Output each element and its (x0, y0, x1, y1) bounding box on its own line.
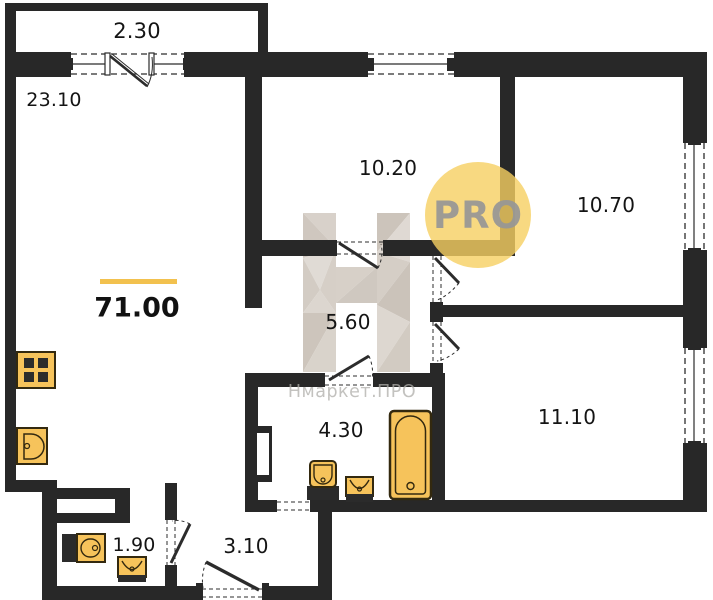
room-label-bedroom3: 11.10 (538, 405, 596, 429)
room-label-bedroom1: 10.20 (359, 156, 417, 180)
room-label-living: 23.10 (26, 89, 81, 111)
wall (683, 250, 707, 348)
wall (5, 480, 52, 492)
sink-icon (346, 477, 373, 502)
kitchen-sink-icon (17, 428, 47, 464)
bathtub-icon (390, 411, 431, 499)
toilet-icon (307, 461, 339, 500)
entrance-door-icon (196, 562, 269, 600)
wall (454, 52, 707, 77)
sink-icon (118, 557, 146, 582)
door-icon (337, 242, 383, 268)
watermark-text: Нмаркет.ПРО (288, 382, 416, 402)
wall (42, 586, 202, 600)
window-icon (366, 54, 455, 74)
balcony-door-icon (65, 53, 191, 87)
room-label-wc: 1.90 (112, 534, 155, 556)
wall (57, 513, 130, 523)
wall (165, 565, 177, 588)
pro-badge-label: PRO (433, 194, 523, 237)
pro-badge: PRO (425, 162, 531, 268)
wall (165, 483, 177, 520)
room-label-balcony: 2.30 (113, 19, 161, 43)
window-icon (685, 137, 704, 256)
room-label-bedroom2: 10.70 (577, 193, 635, 217)
wall (258, 3, 268, 53)
shaft-niche (257, 433, 269, 475)
window-icon (685, 342, 704, 449)
door-icon (433, 322, 459, 363)
room-label-entry: 3.10 (223, 534, 268, 558)
door-opening (277, 502, 310, 510)
wall (5, 3, 268, 11)
door-icon (167, 520, 190, 565)
wall (440, 305, 683, 317)
door-icon (325, 356, 373, 385)
wall (5, 52, 71, 77)
floor-plan: Нмаркет.ПРО 2.30 23.10 10.20 10.70 5.60 … (0, 0, 713, 600)
wall (310, 500, 707, 512)
wall (318, 500, 332, 600)
wall (184, 52, 368, 77)
room-label-hallway: 5.60 (325, 310, 370, 334)
total-area-accent-line (100, 279, 177, 284)
stove-icon (17, 352, 55, 388)
room-label-bathroom: 4.30 (318, 418, 363, 442)
washbasin-icon (62, 534, 105, 562)
wall (245, 77, 262, 308)
wall (432, 373, 445, 512)
wall (42, 480, 57, 600)
wall (683, 52, 707, 143)
total-area-label: 71.00 (94, 293, 179, 324)
wall (262, 240, 337, 256)
